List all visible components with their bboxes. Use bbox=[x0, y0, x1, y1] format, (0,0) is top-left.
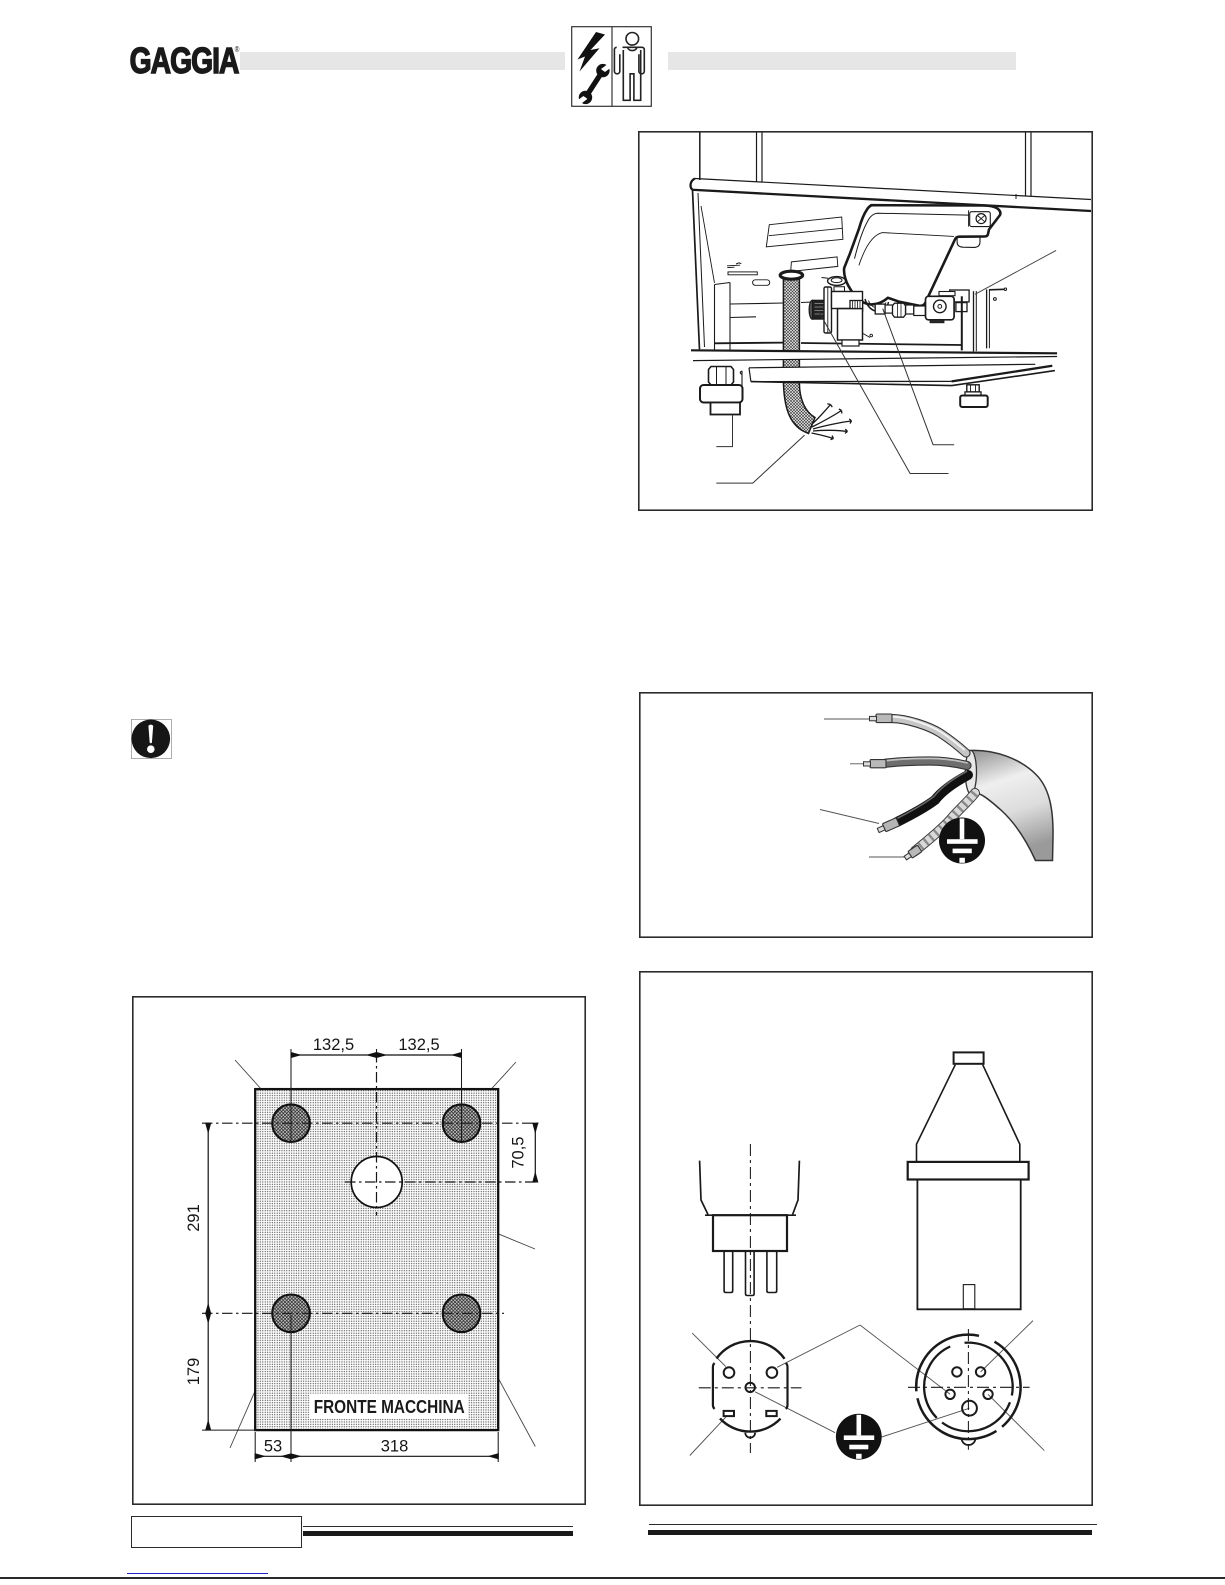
svg-text:FRONTE MACCHINA: FRONTE MACCHINA bbox=[314, 1397, 465, 1417]
svg-text:132,5: 132,5 bbox=[398, 1036, 439, 1054]
svg-text:291: 291 bbox=[185, 1204, 203, 1232]
svg-text:70,5: 70,5 bbox=[510, 1137, 528, 1169]
svg-text:GAGGIA: GAGGIA bbox=[130, 41, 240, 80]
svg-text:179: 179 bbox=[185, 1358, 203, 1386]
svg-text:53: 53 bbox=[264, 1437, 282, 1455]
svg-text:132,5: 132,5 bbox=[313, 1036, 354, 1054]
svg-text:318: 318 bbox=[381, 1437, 409, 1455]
